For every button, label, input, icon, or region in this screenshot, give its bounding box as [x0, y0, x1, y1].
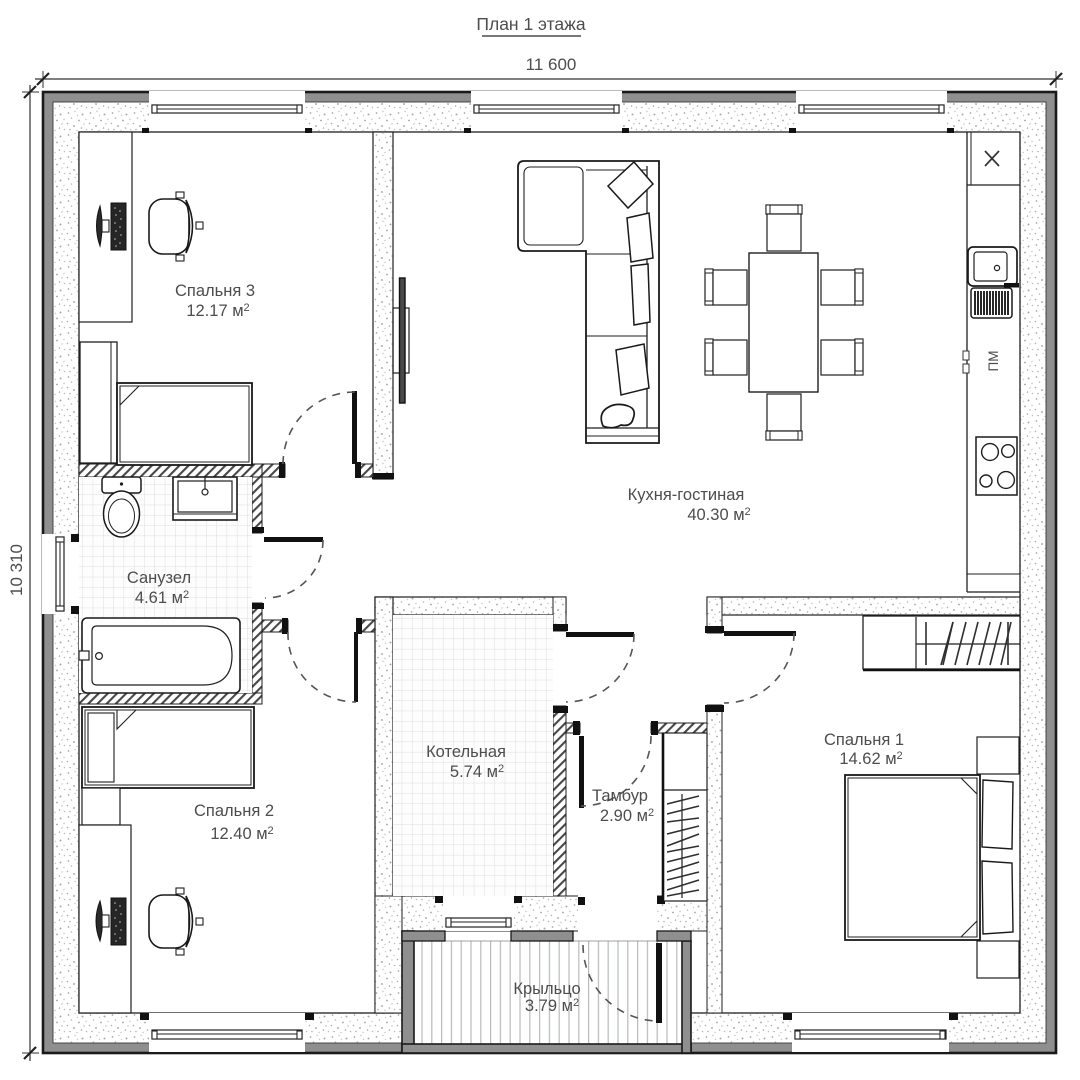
svg-text:10 310: 10 310: [7, 544, 26, 596]
svg-text:Кухня-гостиная: Кухня-гостиная: [628, 486, 745, 504]
svg-text:План 1 этажа: План 1 этажа: [476, 14, 585, 34]
svg-text:3.79 м2: 3.79 м2: [525, 997, 579, 1015]
svg-text:Тамбур: Тамбур: [592, 787, 648, 805]
svg-text:ПМ: ПМ: [986, 351, 1001, 372]
svg-text:4.61 м2: 4.61 м2: [135, 589, 189, 607]
svg-text:14.62 м2: 14.62 м2: [839, 750, 902, 768]
svg-text:11 600: 11 600: [526, 55, 577, 74]
svg-text:2.90 м2: 2.90 м2: [600, 807, 654, 825]
svg-text:12.17 м2: 12.17 м2: [186, 302, 249, 320]
svg-text:12.40 м2: 12.40 м2: [210, 825, 273, 843]
svg-text:Крыльцо: Крыльцо: [513, 980, 580, 998]
svg-text:40.30 м2: 40.30 м2: [687, 506, 750, 524]
svg-text:Спальня 3: Спальня 3: [175, 282, 255, 300]
svg-text:Спальня 1: Спальня 1: [824, 731, 904, 749]
svg-text:Спальня 2: Спальня 2: [194, 802, 274, 820]
svg-text:5.74 м2: 5.74 м2: [450, 763, 504, 781]
svg-text:Санузел: Санузел: [127, 569, 191, 587]
svg-text:Котельная: Котельная: [426, 743, 506, 761]
